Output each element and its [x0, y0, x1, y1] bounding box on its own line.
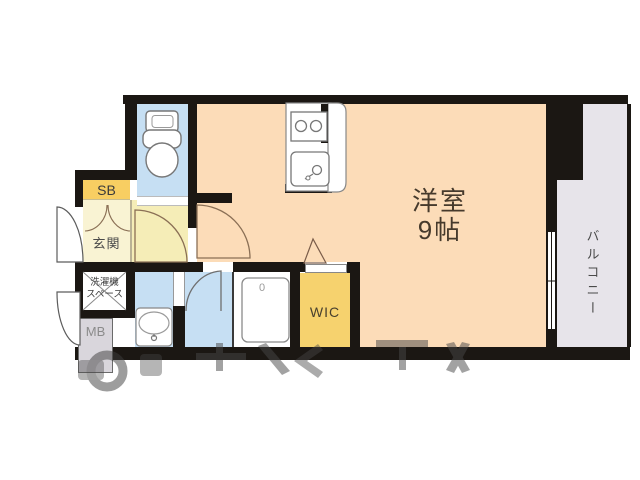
label-genkan: 玄関 — [83, 232, 130, 252]
label-laundry: 洗濯機 スペース — [81, 275, 128, 303]
wall — [75, 180, 83, 207]
label-wic: WIC — [300, 303, 350, 321]
floorplan: SB 玄関 洗濯機 スペース MB 0 WIC 洋室 9帖 バルコニー — [0, 0, 640, 480]
doorway-washroom — [203, 262, 233, 272]
room-main-upper — [197, 104, 546, 262]
room-washroom — [185, 272, 232, 347]
wall — [350, 262, 360, 347]
wall — [285, 184, 332, 193]
wall — [123, 95, 628, 104]
wic-opening — [305, 264, 347, 273]
wall — [188, 95, 197, 228]
washroom-unitbath-divider — [232, 272, 234, 347]
room-main-lower — [360, 262, 546, 347]
label-balcony: バルコニー — [578, 218, 606, 330]
room-bath — [135, 272, 173, 347]
wall — [173, 306, 185, 347]
label-mb: MB — [78, 322, 113, 340]
wall — [190, 193, 232, 203]
room-toilet — [137, 104, 188, 196]
label-sb: SB — [83, 181, 130, 199]
wall — [627, 104, 631, 347]
wall — [290, 262, 300, 347]
bath-sliding-door — [173, 272, 185, 306]
wall — [75, 262, 203, 272]
sb-genkan-divider — [83, 199, 130, 200]
genkan-hall-divider — [130, 200, 132, 262]
wall — [125, 95, 137, 170]
room-hall — [132, 200, 188, 262]
balcony-window — [546, 232, 557, 329]
wall — [546, 329, 557, 347]
label-main-room: 洋室 9帖 — [398, 184, 482, 248]
wall — [557, 104, 583, 180]
wall — [75, 347, 630, 360]
room-genkan — [83, 200, 130, 262]
balcony-upper — [583, 104, 627, 182]
label-unit-bath: 0 — [252, 281, 272, 295]
doorway-toilet — [137, 196, 188, 206]
wall — [75, 170, 137, 180]
entrance-door-arc — [57, 207, 83, 262]
wall — [75, 310, 135, 318]
doorway-main — [188, 228, 197, 262]
wall — [546, 104, 557, 232]
